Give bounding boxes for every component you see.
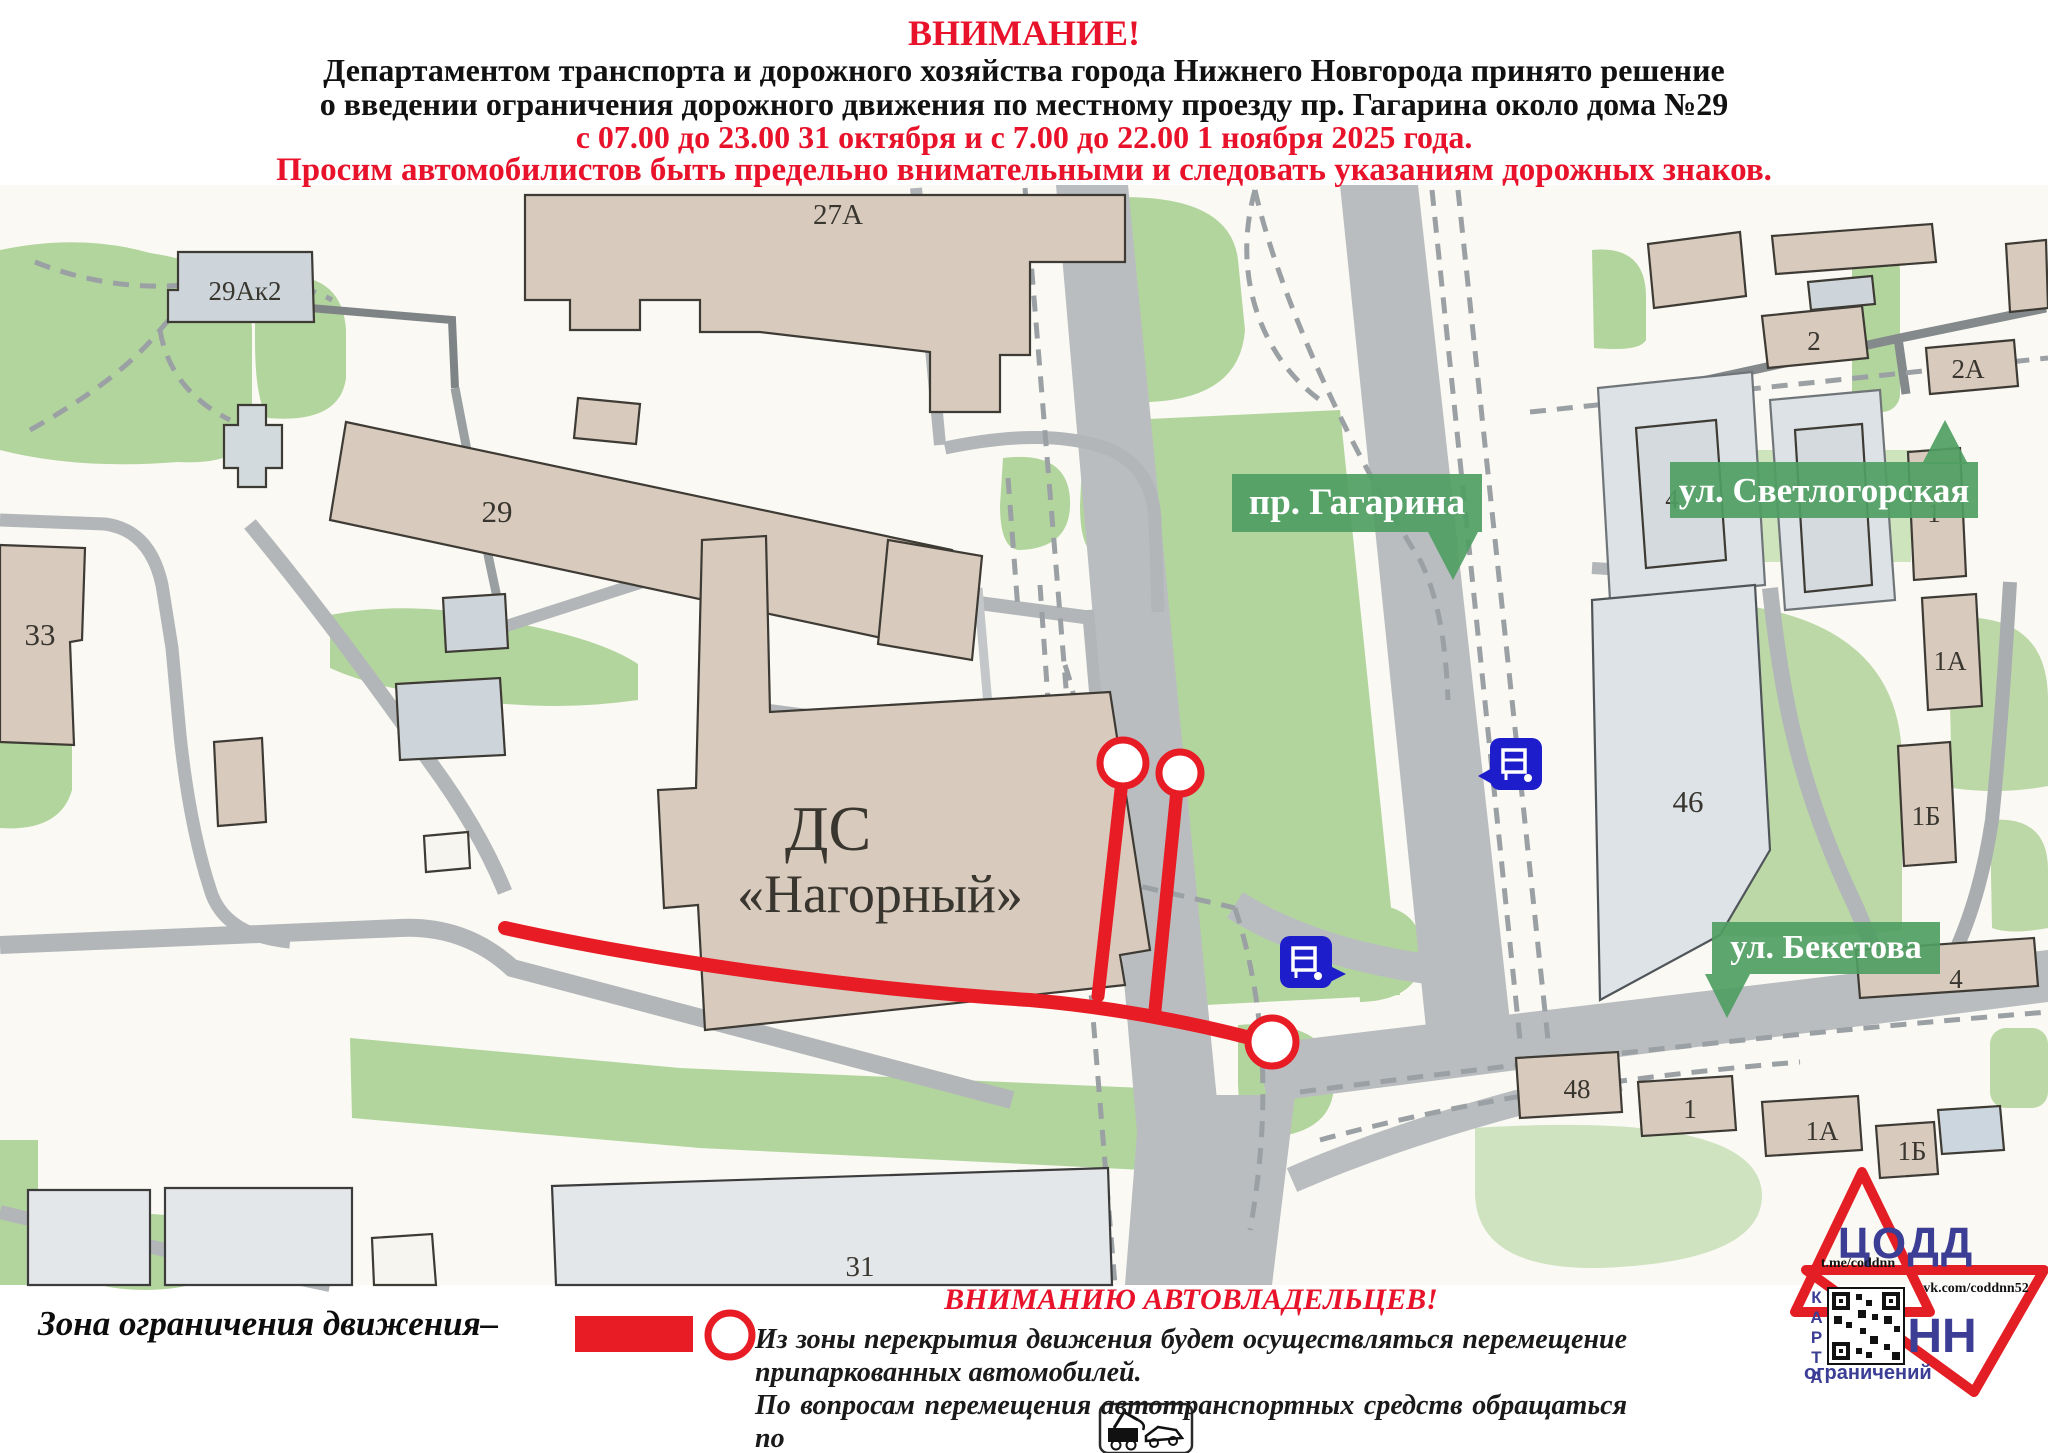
header-attention: ВНИМАНИЕ! xyxy=(0,12,2048,54)
building-label: 48 xyxy=(1564,1074,1591,1104)
building-label: 1Б xyxy=(1911,801,1940,831)
building-label: 46 xyxy=(1673,784,1704,819)
notice-line2: припаркованных автомобилей. xyxy=(755,1356,1627,1389)
building-label: 1А xyxy=(1934,646,1968,676)
building-label: 29Ак2 xyxy=(208,276,281,306)
traffic-restriction-poster: 29Ак2 27А 29 33 2 2А 4 1 1А 1Б 46 4 48 1… xyxy=(0,0,2048,1453)
logo-telegram-link: t.me/coddnn xyxy=(1821,1256,1896,1271)
header-dates: с 07.00 до 23.00 31 октября и с 7.00 до … xyxy=(0,119,2048,156)
notice-title: ВНИМАНИЮ АВТОВЛАДЕЛЬЦЕВ! xyxy=(755,1283,1627,1317)
building-label: 31 xyxy=(846,1251,875,1283)
notice-line1: Из зоны перекрытия движения будет осущес… xyxy=(755,1323,1627,1356)
building-label: 2 xyxy=(1807,326,1821,356)
logo-city: НН xyxy=(1907,1310,1976,1363)
building-label: 29 xyxy=(482,494,513,529)
logo-restrictions-word: ограничений xyxy=(1804,1362,1932,1385)
legend-circle-swatch xyxy=(708,1313,752,1357)
legend-symbols xyxy=(575,1313,752,1357)
building-label: 2А xyxy=(1952,354,1986,384)
header-line3: о введении ограничения дорожного движени… xyxy=(0,86,2048,123)
svg-text:пр. Гагарина: пр. Гагарина xyxy=(1249,482,1465,523)
building-label: 4 xyxy=(1949,964,1963,994)
qr-code xyxy=(1828,1288,1904,1364)
header-line2: Департаментом транспорта и дорожного хоз… xyxy=(0,52,2048,89)
building-label: 27А xyxy=(813,199,863,231)
building-label: 1 xyxy=(1683,1094,1697,1124)
legend-line-swatch xyxy=(575,1316,693,1352)
closure-point xyxy=(1248,1018,1296,1066)
svg-text:ул. Бекетова: ул. Бекетова xyxy=(1730,929,1921,966)
owners-notice: ВНИМАНИЮ АВТОВЛАДЕЛЬЦЕВ! Из зоны перекры… xyxy=(755,1283,1627,1453)
closure-point xyxy=(1100,740,1146,786)
building-label: 1Б xyxy=(1897,1136,1926,1166)
venue-name-line2: «Нагорный» xyxy=(737,864,1023,924)
logo-vk-link: vk.com/coddnn52 xyxy=(1923,1281,2028,1296)
notice-line3: По вопросам перемещения автотранспортных… xyxy=(755,1389,1627,1453)
venue-name-line1: ДС xyxy=(785,793,871,864)
city-map: 29Ак2 27А 29 33 2 2А 4 1 1А 1Б 46 4 48 1… xyxy=(0,0,2048,1453)
header-warning: Просим автомобилистов быть предельно вни… xyxy=(0,152,2048,189)
building-label: 1А xyxy=(1806,1116,1840,1146)
building-label: 33 xyxy=(25,617,56,652)
legend-zone-label: Зона ограничения движения– xyxy=(38,1304,498,1344)
svg-text:ул. Светлогорская: ул. Светлогорская xyxy=(1679,471,1970,510)
building xyxy=(552,1168,1112,1285)
closure-point xyxy=(1159,752,1201,794)
